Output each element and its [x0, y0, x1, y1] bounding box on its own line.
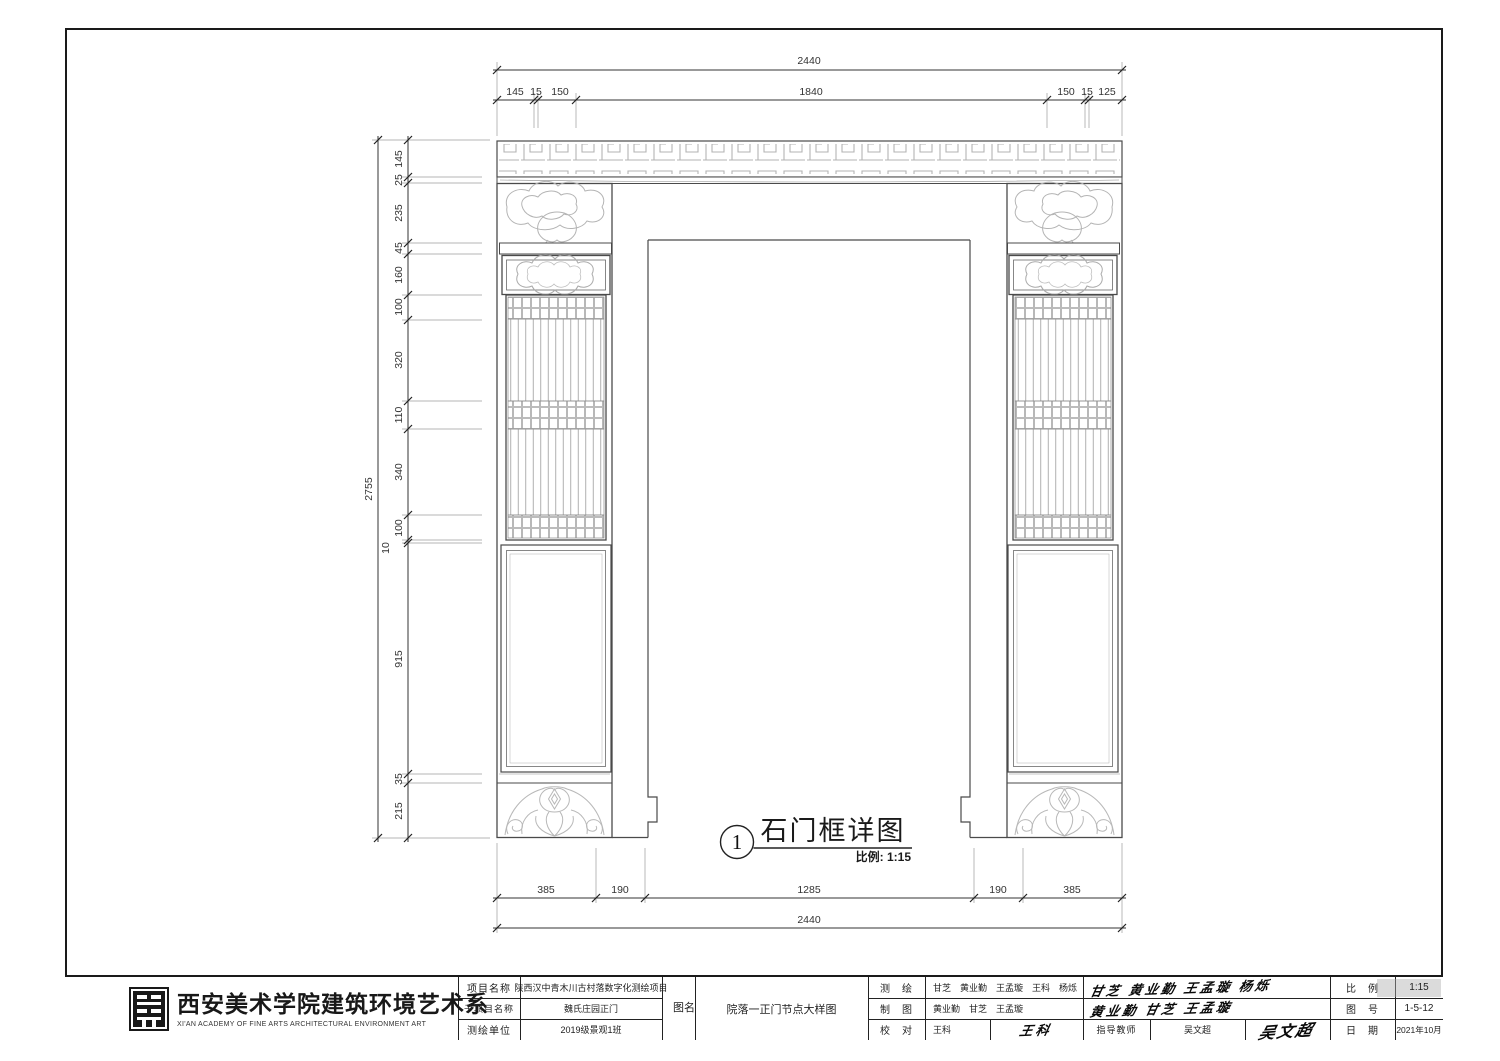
cartouche-panel: [502, 255, 610, 295]
survey-signatures: 甘芝 黄业勤 王孟璇 杨烁: [1083, 977, 1330, 998]
dim-top-seg: 1840: [799, 86, 823, 98]
subproject-label: 子项目名称: [458, 998, 520, 1019]
survey-label: 测 绘: [868, 977, 925, 998]
dim-top-seg: 150: [551, 86, 569, 98]
detail-title: 1 石门框详图 比例: 1:15: [721, 816, 913, 864]
lintel-frieze: [497, 141, 1122, 184]
org-name-en: XI'AN ACADEMY OF FINE ARTS ARCHITECTURAL…: [177, 1021, 489, 1028]
check-label: 校 对: [868, 1019, 925, 1040]
survey-unit-value: 2019级景观1班: [520, 1019, 662, 1040]
date-label: 日 期: [1330, 1019, 1395, 1040]
drawing-name-label: 图名: [662, 977, 695, 1040]
detail-scale-note: 比例: 1:15: [856, 849, 912, 864]
door-opening: [612, 240, 1007, 838]
advisor-label: 指导教师: [1083, 1019, 1150, 1040]
drawing-name-value: 院落一正门节点大样图: [695, 977, 868, 1040]
dim-left-seg: 320: [393, 351, 405, 369]
project-value: 陕西汉中青木川古村落数字化测绘项目: [520, 977, 662, 998]
door-frame-drawing: 2440 145 15 150 1840 150 15 125 2755 145…: [0, 0, 1500, 1061]
dim-left-overall: 2755: [363, 477, 375, 501]
draft-names: 黄业勤 甘芝 王孟璇: [925, 998, 1083, 1019]
dim-left-seg: 100: [393, 298, 405, 316]
dim-top-seg: 145: [506, 86, 524, 98]
dim-top-overall: 2440: [797, 55, 821, 67]
org-cell: 西安美术学院建筑环境艺术系 XI'AN ACADEMY OF FINE ARTS…: [65, 977, 458, 1040]
dim-top-seg: 15: [530, 86, 542, 98]
drawing-sheet: 2440 145 15 150 1840 150 15 125 2755 145…: [0, 0, 1500, 1061]
xafa-logo-seal: [129, 987, 169, 1031]
date-value: 2021年10月: [1395, 1019, 1443, 1040]
dim-bottom-seg: 385: [1063, 884, 1081, 896]
dim-bottom-overall: 2440: [797, 914, 821, 926]
draft-signatures: 黄业勤 甘芝 王孟璇: [1083, 998, 1330, 1019]
door-pillar-right: [1007, 181, 1122, 837]
plain-panel: [501, 545, 611, 772]
scale-value: 1:15: [1395, 977, 1443, 998]
dim-left-seg: 145: [393, 150, 405, 168]
dim-top-seg: 15: [1081, 86, 1093, 98]
survey-names: 甘芝 黄业勤 王孟璇 王科 杨烁: [925, 977, 1083, 998]
dim-bottom-seg: 190: [611, 884, 629, 896]
dim-bottom-seg: 190: [989, 884, 1007, 896]
dim-left-seg: 915: [393, 650, 405, 668]
check-signature: 王科: [990, 1019, 1083, 1040]
dim-top-seg: 150: [1057, 86, 1075, 98]
detail-number: 1: [732, 830, 743, 854]
title-block: 西安美术学院建筑环境艺术系 XI'AN ACADEMY OF FINE ARTS…: [65, 975, 1443, 1038]
project-label: 项目名称: [458, 977, 520, 998]
check-name: 王科: [925, 1019, 990, 1040]
dim-top-seg: 125: [1098, 86, 1116, 98]
sheet-no-label: 图 号: [1330, 998, 1395, 1019]
dim-left-seg: 340: [393, 463, 405, 481]
door-pillar: [497, 181, 612, 837]
dim-bottom-seg: 385: [537, 884, 555, 896]
dim-left-seg: 45: [393, 242, 405, 254]
dim-left-seg: 215: [393, 802, 405, 820]
dim-left-seg: 35: [393, 773, 405, 785]
striped-shaft: [506, 295, 606, 540]
advisor-name: 吴文超: [1150, 1019, 1245, 1040]
subproject-value: 魏氏庄园正门: [520, 998, 662, 1019]
draft-label: 制 图: [868, 998, 925, 1019]
dim-left-seg: 10: [380, 542, 392, 554]
dimension-labels: 2440 145 15 150 1840 150 15 125 2755 145…: [363, 55, 1116, 926]
dim-bottom-seg: 1285: [797, 884, 821, 896]
survey-unit-label: 测绘单位: [458, 1019, 520, 1040]
sheet-no-value: 1-5-12: [1395, 998, 1443, 1019]
dim-left-seg: 110: [393, 406, 405, 423]
org-name-cn: 西安美术学院建筑环境艺术系: [177, 985, 489, 1019]
dim-left-seg: 100: [393, 519, 405, 537]
dim-left-seg: 160: [393, 266, 405, 284]
dim-left-seg: 25: [393, 174, 405, 186]
dim-left-seg: 235: [393, 204, 405, 222]
detail-title-text: 石门框详图: [761, 816, 906, 846]
advisor-signature: 吴文超: [1245, 1019, 1330, 1040]
scale-label: 比 例: [1330, 977, 1395, 998]
